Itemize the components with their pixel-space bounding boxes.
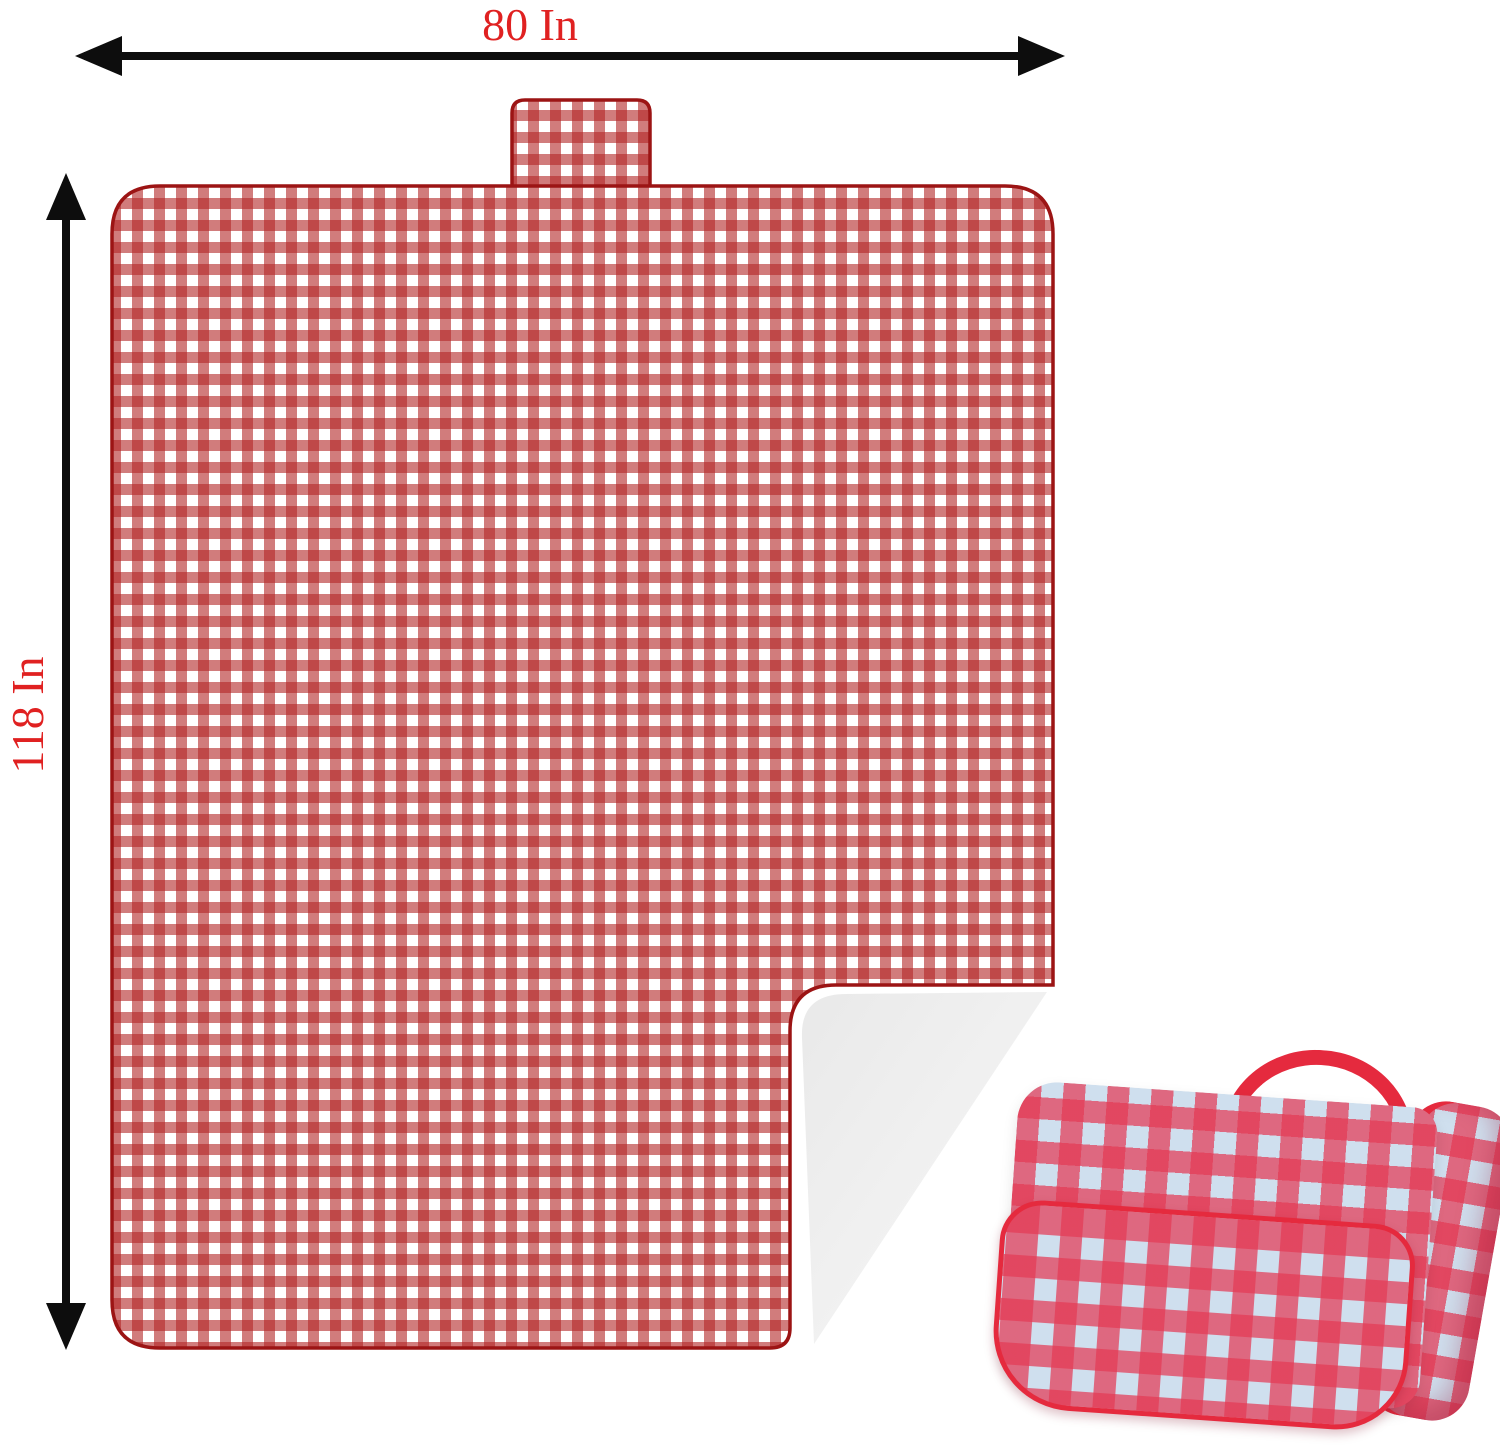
front-flap (988, 1198, 1417, 1435)
height-dimension-label: 118 In (5, 656, 51, 773)
blanket-tab-shape (512, 100, 650, 190)
folded-blanket-photo (995, 1030, 1500, 1447)
product-image-canvas: 80 In 118 In (0, 0, 1500, 1447)
width-dimension-label: 80 In (430, 2, 630, 48)
